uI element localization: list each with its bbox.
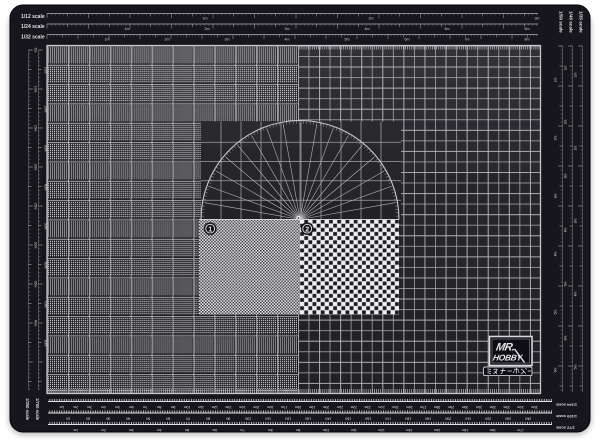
svg-text:19m: 19m — [425, 417, 432, 421]
svg-text:23m: 23m — [505, 417, 512, 421]
svg-text:1m: 1m — [105, 38, 110, 42]
svg-text:6m: 6m — [525, 27, 530, 31]
svg-text:10m: 10m — [184, 405, 191, 409]
svg-text:14m: 14m — [239, 405, 246, 409]
svg-text:4m: 4m — [573, 291, 577, 296]
svg-text:3m: 3m — [285, 27, 290, 31]
svg-text:20m: 20m — [445, 417, 452, 421]
svg-text:14m: 14m — [434, 428, 441, 432]
svg-text:8m: 8m — [205, 417, 210, 421]
svg-text:18m: 18m — [405, 417, 412, 421]
svg-text:32m: 32m — [489, 405, 496, 409]
svg-text:34m: 34m — [517, 405, 524, 409]
svg-text:4m: 4m — [365, 27, 370, 31]
svg-text:7m: 7m — [465, 38, 470, 42]
svg-text:1/144 scale: 1/144 scale — [555, 403, 577, 408]
svg-text:5m: 5m — [115, 405, 120, 409]
svg-text:11m: 11m — [350, 428, 356, 432]
svg-text:80m: 80m — [44, 340, 48, 347]
svg-text:10m: 10m — [44, 67, 48, 74]
svg-text:2m: 2m — [563, 119, 567, 124]
svg-text:18m: 18m — [295, 405, 302, 409]
svg-text:15m: 15m — [34, 125, 38, 132]
svg-text:24m: 24m — [525, 417, 532, 421]
svg-text:2m: 2m — [573, 145, 577, 150]
svg-text:25m: 25m — [34, 203, 38, 210]
svg-text:6m: 6m — [405, 38, 410, 42]
svg-text:5m: 5m — [184, 428, 189, 432]
svg-text:12m: 12m — [211, 405, 218, 409]
svg-text:21m: 21m — [336, 405, 343, 409]
svg-text:1/100 scale: 1/100 scale — [555, 414, 577, 419]
svg-text:4m: 4m — [157, 428, 162, 432]
svg-text:4m: 4m — [101, 405, 106, 409]
svg-text:3m: 3m — [105, 417, 110, 421]
svg-text:1/48 scale: 1/48 scale — [569, 11, 574, 33]
svg-text:28m: 28m — [434, 405, 441, 409]
svg-text:30m: 30m — [44, 145, 48, 152]
svg-text:6m: 6m — [165, 417, 170, 421]
svg-text:6m: 6m — [212, 428, 217, 432]
svg-text:7m: 7m — [185, 417, 190, 421]
svg-text:5m: 5m — [563, 281, 567, 286]
svg-text:1m: 1m — [125, 27, 130, 31]
svg-text:2m: 2m — [369, 17, 374, 21]
svg-text:21m: 21m — [465, 417, 472, 421]
svg-text:9m: 9m — [296, 428, 301, 432]
svg-text:17m: 17m — [385, 417, 392, 421]
svg-text:1/35 scale: 1/35 scale — [579, 11, 584, 33]
svg-text:1m: 1m — [563, 65, 567, 70]
svg-text:1m: 1m — [65, 417, 70, 421]
svg-text:24m: 24m — [378, 405, 385, 409]
svg-text:27m: 27m — [420, 405, 427, 409]
svg-text:7m: 7m — [240, 428, 245, 432]
svg-text:1m: 1m — [59, 405, 64, 409]
svg-text:23m: 23m — [364, 405, 371, 409]
svg-text:30m: 30m — [462, 405, 469, 409]
svg-text:20m: 20m — [34, 164, 38, 171]
svg-text:7m: 7m — [143, 405, 148, 409]
svg-text:6m: 6m — [563, 335, 567, 340]
svg-text:1/50 scale: 1/50 scale — [559, 11, 564, 33]
svg-text:11m: 11m — [198, 405, 204, 409]
svg-text:15m: 15m — [462, 428, 469, 432]
svg-text:5m: 5m — [445, 27, 450, 31]
svg-text:4m: 4m — [285, 38, 290, 42]
svg-text:1/24 scale: 1/24 scale — [21, 24, 45, 30]
svg-text:2m: 2m — [553, 135, 557, 140]
svg-text:40m: 40m — [44, 184, 48, 191]
svg-text:2m: 2m — [101, 428, 106, 432]
svg-text:1m: 1m — [73, 428, 78, 432]
svg-text:15m: 15m — [345, 417, 352, 421]
svg-text:2m: 2m — [205, 27, 210, 31]
svg-text:5m: 5m — [553, 309, 557, 314]
svg-text:2m: 2m — [165, 38, 170, 42]
svg-text:3m: 3m — [553, 193, 557, 198]
svg-text:12m: 12m — [285, 417, 292, 421]
svg-text:29m: 29m — [448, 405, 455, 409]
svg-text:33m: 33m — [503, 405, 510, 409]
svg-text:8m: 8m — [157, 405, 162, 409]
svg-text:9m: 9m — [225, 417, 230, 421]
svg-text:35m: 35m — [34, 281, 38, 288]
svg-text:15m: 15m — [253, 405, 260, 409]
svg-text:50m: 50m — [44, 223, 48, 230]
svg-text:3m: 3m — [563, 173, 567, 178]
svg-text:1/32 scale: 1/32 scale — [21, 34, 45, 40]
svg-text:5m: 5m — [345, 38, 350, 42]
svg-text:16m: 16m — [489, 428, 496, 432]
svg-text:10m: 10m — [323, 428, 330, 432]
svg-text:1/700 scale: 1/700 scale — [35, 398, 40, 421]
svg-text:2m: 2m — [73, 405, 78, 409]
svg-text:16m: 16m — [267, 405, 274, 409]
svg-text:1m: 1m — [553, 77, 557, 82]
svg-text:11m: 11m — [265, 417, 271, 421]
svg-text:3m: 3m — [573, 218, 577, 223]
svg-text:13m: 13m — [225, 405, 232, 409]
svg-text:HOBBY: HOBBY — [492, 353, 524, 363]
svg-text:25m: 25m — [392, 405, 399, 409]
svg-text:5m: 5m — [34, 48, 38, 53]
svg-text:10m: 10m — [34, 86, 38, 93]
svg-text:3m: 3m — [129, 428, 134, 432]
svg-text:1/72 scale: 1/72 scale — [555, 426, 575, 431]
svg-text:1m: 1m — [203, 17, 208, 21]
svg-text:70m: 70m — [44, 301, 48, 308]
svg-text:1/350 scale: 1/350 scale — [25, 398, 30, 421]
svg-text:26m: 26m — [406, 405, 413, 409]
svg-text:1/12 scale: 1/12 scale — [21, 14, 45, 20]
svg-text:17m: 17m — [517, 428, 524, 432]
svg-text:31m: 31m — [475, 405, 482, 409]
svg-text:8m: 8m — [525, 38, 530, 42]
svg-text:9m: 9m — [171, 405, 176, 409]
svg-text:8m: 8m — [268, 428, 273, 432]
svg-text:14m: 14m — [325, 417, 332, 421]
svg-text:22m: 22m — [350, 405, 357, 409]
svg-text:40m: 40m — [34, 320, 38, 327]
svg-text:16m: 16m — [365, 417, 372, 421]
svg-text:6m: 6m — [129, 405, 134, 409]
svg-text:3m: 3m — [225, 38, 230, 42]
svg-text:20m: 20m — [323, 405, 330, 409]
svg-text:22m: 22m — [485, 417, 492, 421]
svg-text:1m: 1m — [573, 72, 577, 77]
svg-text:30m: 30m — [34, 242, 38, 249]
svg-text:4m: 4m — [553, 251, 557, 256]
svg-text:19m: 19m — [309, 405, 316, 409]
svg-text:17m: 17m — [281, 405, 288, 409]
svg-text:20m: 20m — [44, 106, 48, 113]
svg-text:13m: 13m — [305, 417, 312, 421]
svg-text:3m: 3m — [87, 405, 92, 409]
svg-text:4m: 4m — [563, 227, 567, 232]
svg-text:5m: 5m — [573, 364, 577, 369]
svg-text:5m: 5m — [145, 417, 150, 421]
svg-text:60m: 60m — [44, 262, 48, 269]
svg-text:13m: 13m — [406, 428, 413, 432]
svg-text:4m: 4m — [125, 417, 130, 421]
svg-text:2m: 2m — [85, 417, 90, 421]
svg-text:12m: 12m — [378, 428, 385, 432]
svg-text:10m: 10m — [245, 417, 252, 421]
svg-text:35m: 35m — [531, 405, 538, 409]
svg-text:6m: 6m — [553, 367, 557, 372]
svg-text:3m: 3m — [535, 17, 540, 21]
